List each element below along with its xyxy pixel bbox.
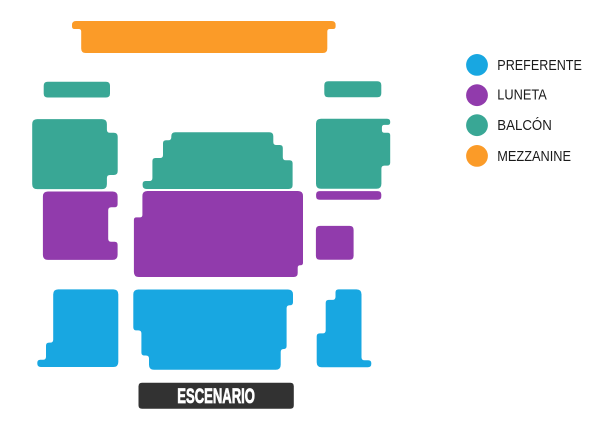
svg-text:PREFERENTE: PREFERENTE [497, 57, 582, 74]
svg-text:LUNETA: LUNETA [497, 87, 547, 104]
svg-text:BALCÓN: BALCÓN [497, 117, 552, 134]
svg-text:MEZZANINE: MEZZANINE [497, 148, 571, 165]
svg-text:ESCENARIO: ESCENARIO [177, 385, 255, 408]
